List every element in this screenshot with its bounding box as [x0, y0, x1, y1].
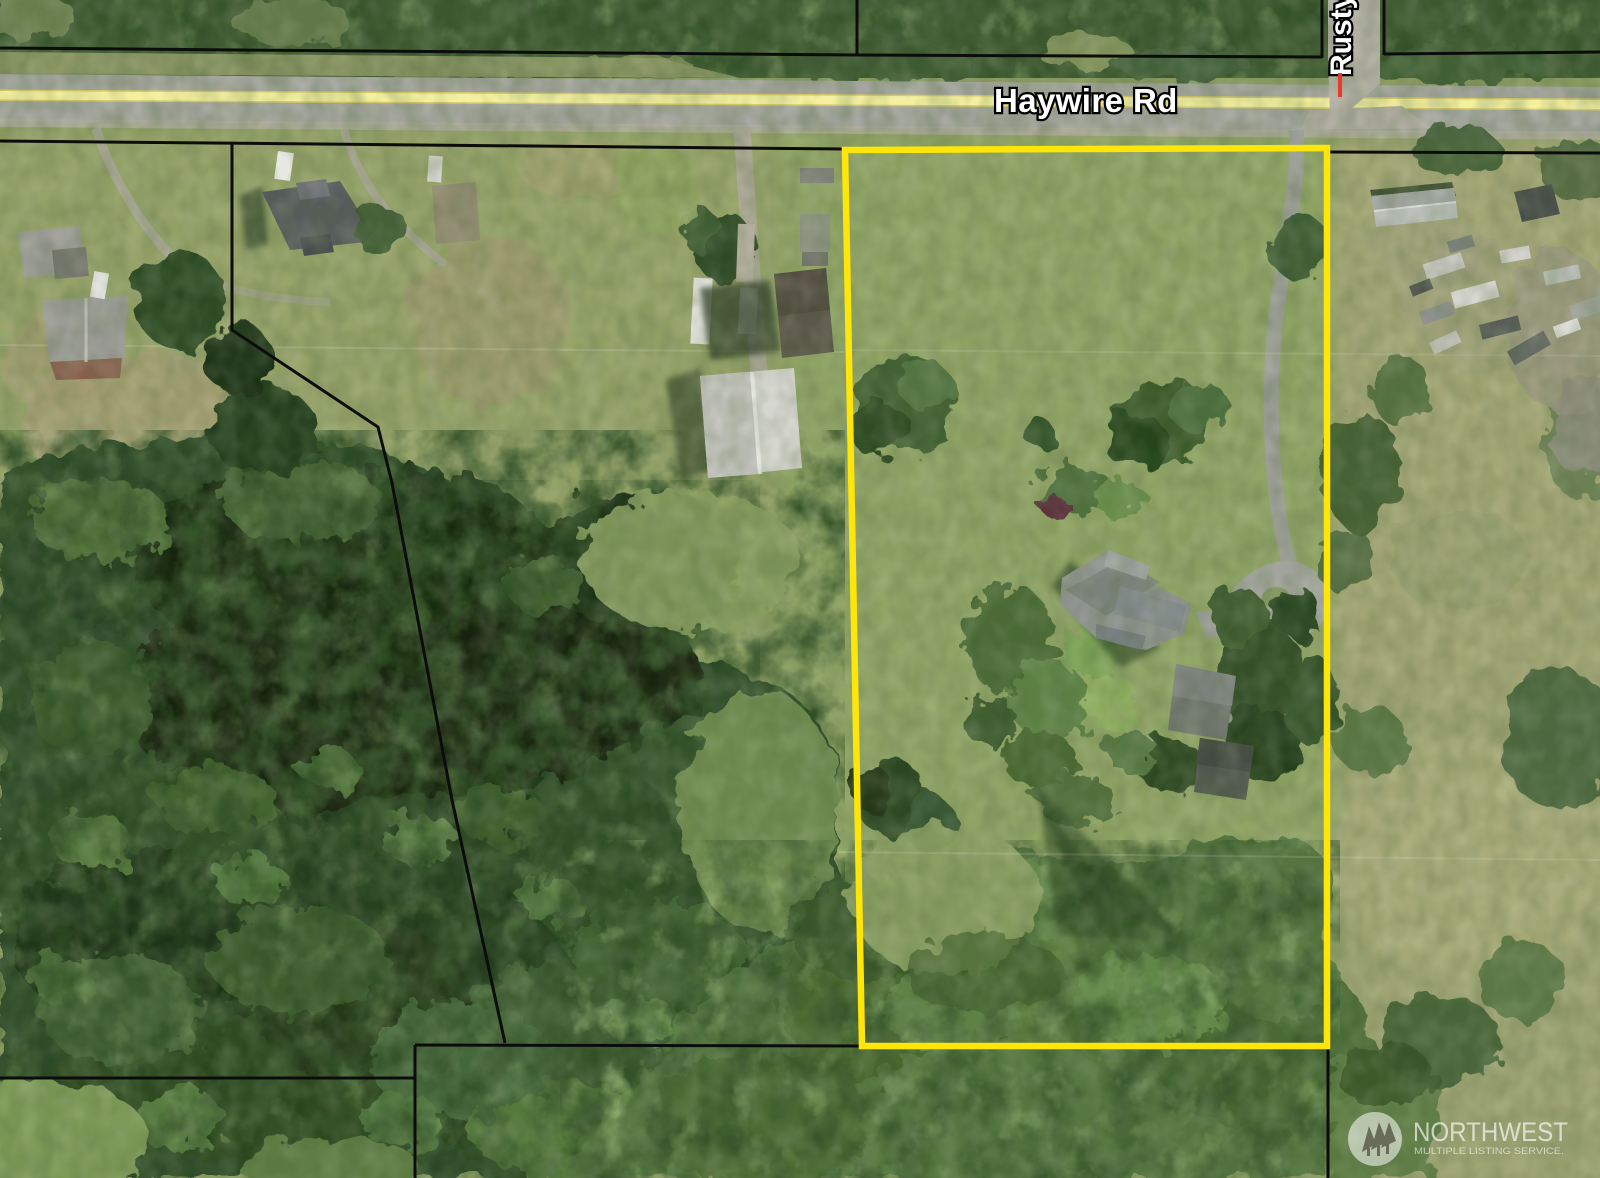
svg-text:NORTHWEST: NORTHWEST: [1413, 1117, 1568, 1147]
svg-text:Rusty: Rusty: [1325, 0, 1358, 76]
svg-text:MULTIPLE LISTING SERVICE.: MULTIPLE LISTING SERVICE.: [1414, 1146, 1564, 1157]
svg-text:Haywire Rd: Haywire Rd: [994, 82, 1178, 119]
